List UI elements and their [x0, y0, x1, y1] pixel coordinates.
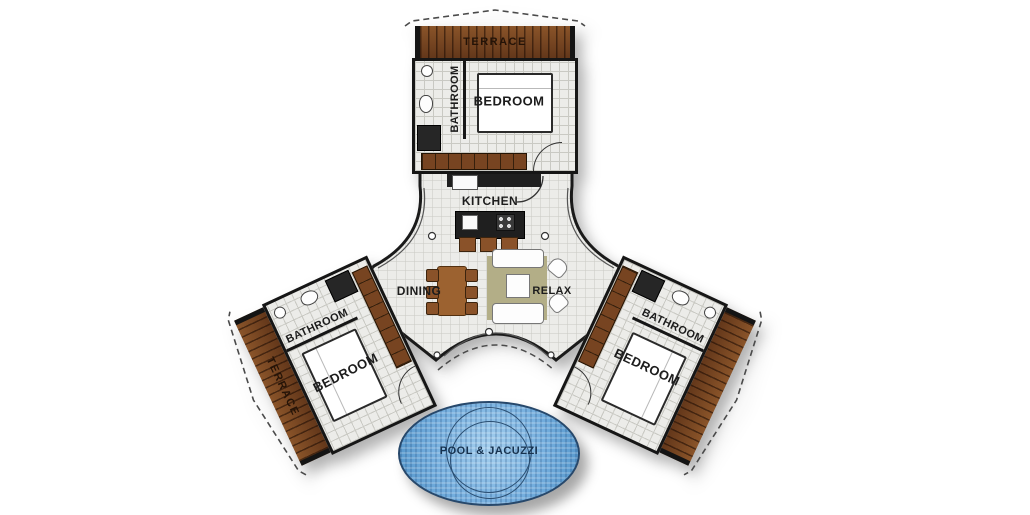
floor-plan-canvas: KITCHEN DINING RELAX TERRACE BATHR	[0, 0, 1030, 515]
dining-chair	[465, 286, 478, 299]
pool-label: POOL & JACUZZI	[440, 445, 538, 457]
sink-icon	[421, 65, 433, 77]
kitchen-sink	[452, 175, 478, 190]
sofa	[492, 249, 544, 268]
sofa	[492, 303, 544, 324]
dining-label: DINING	[397, 284, 441, 298]
dining-chair	[426, 269, 439, 282]
roof-overhang-dashed	[404, 9, 586, 27]
sink-icon	[702, 305, 718, 321]
terrace-deck: TERRACE	[415, 26, 575, 58]
coffee-table	[506, 274, 530, 298]
door-arc	[533, 142, 562, 171]
dining-table	[437, 266, 467, 316]
toilet-icon	[419, 95, 433, 113]
bar-stool	[459, 237, 476, 252]
sink-icon	[272, 305, 288, 321]
terrace-label: TERRACE	[463, 36, 527, 48]
jacuzzi-ring-inner	[450, 421, 530, 499]
wing-rooms: BATHROOM BEDROOM	[412, 58, 578, 174]
roof-dashed-bottom	[438, 345, 554, 370]
wing-top: TERRACE BATHROOM BEDROOM	[412, 26, 578, 174]
island-sink	[462, 215, 478, 230]
bathroom-wall	[463, 61, 466, 139]
dining-chair	[426, 302, 439, 315]
bedroom-label: BEDROOM	[474, 94, 545, 109]
wardrobe	[421, 153, 527, 170]
dining-chair	[465, 302, 478, 315]
door-arc	[562, 366, 601, 405]
dining-chair	[465, 269, 478, 282]
kitchen-label: KITCHEN	[462, 194, 518, 208]
cooktop	[496, 214, 515, 231]
toilet-icon	[669, 288, 691, 308]
bathroom-label: BATHROOM	[449, 65, 461, 132]
shower-icon	[417, 125, 441, 151]
relax-label: RELAX	[532, 285, 571, 297]
toilet-icon	[298, 288, 320, 308]
pool: POOL & JACUZZI	[398, 401, 580, 506]
